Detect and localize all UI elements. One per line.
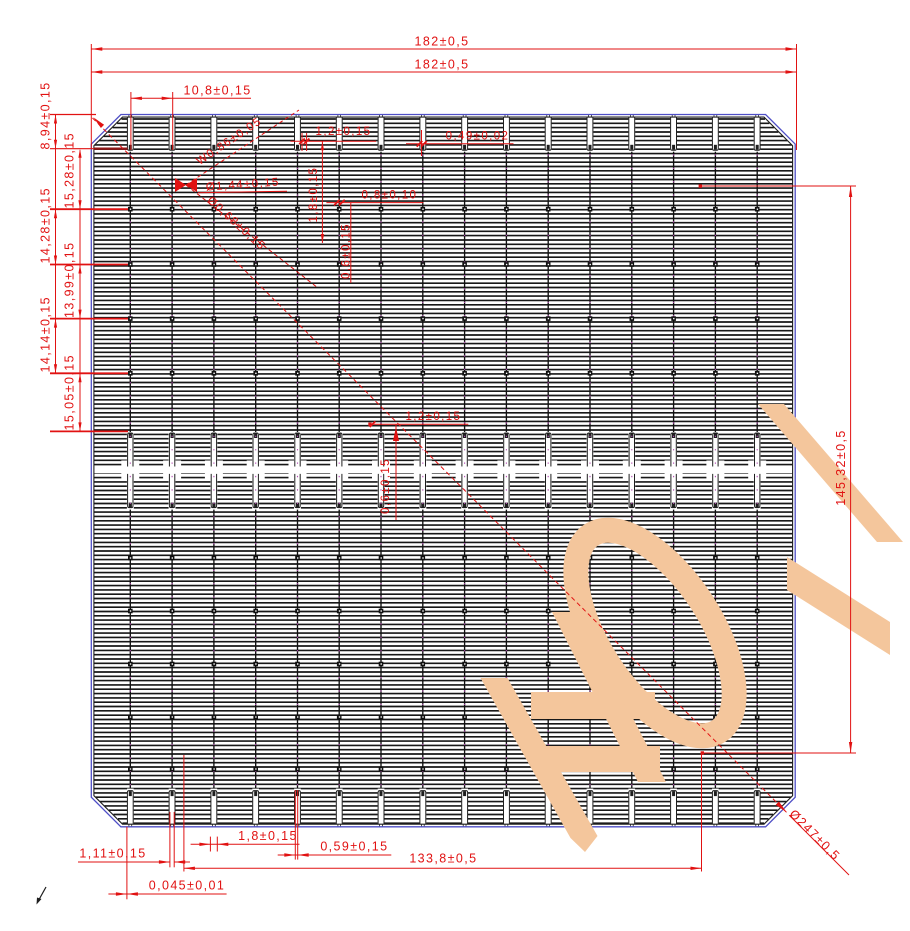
svg-text:133,8±0,5: 133,8±0,5 <box>409 851 477 865</box>
svg-text:1,2±0,15: 1,2±0,15 <box>316 126 372 138</box>
svg-text:0,59±0,15: 0,59±0,15 <box>320 840 388 854</box>
svg-text:1,11±0,15: 1,11±0,15 <box>79 847 146 861</box>
svg-text:0,8±0,10: 0,8±0,10 <box>361 189 417 201</box>
svg-text:10,8±0,15: 10,8±0,15 <box>183 84 251 98</box>
svg-text:182±0,5: 182±0,5 <box>415 35 470 49</box>
svg-text:14,28±0,15: 14,28±0,15 <box>38 187 52 263</box>
svg-text:1,2±0,15: 1,2±0,15 <box>405 411 461 423</box>
svg-text:0,6±0,15: 0,6±0,15 <box>380 458 392 514</box>
svg-text:14,14±0,15: 14,14±0,15 <box>38 296 52 372</box>
svg-text:15,05±0,15: 15,05±0,15 <box>62 354 76 430</box>
svg-text:8,94±0,15: 8,94±0,15 <box>38 81 52 149</box>
svg-text:13,99±0,15: 13,99±0,15 <box>62 242 76 318</box>
svg-text:182±0,5: 182±0,5 <box>415 58 470 72</box>
svg-text:1,8±0,15: 1,8±0,15 <box>308 167 320 223</box>
svg-text:15,28±0,15: 15,28±0,15 <box>62 132 76 208</box>
svg-text:0,6±0,15: 0,6±0,15 <box>340 223 352 279</box>
svg-text:0,49±0,02: 0,49±0,02 <box>446 131 510 143</box>
svg-text:1,8±0,15: 1,8±0,15 <box>238 829 298 843</box>
svg-text:0,045±0,01: 0,045±0,01 <box>149 879 225 893</box>
svg-text:145,32±0,5: 145,32±0,5 <box>834 429 848 505</box>
